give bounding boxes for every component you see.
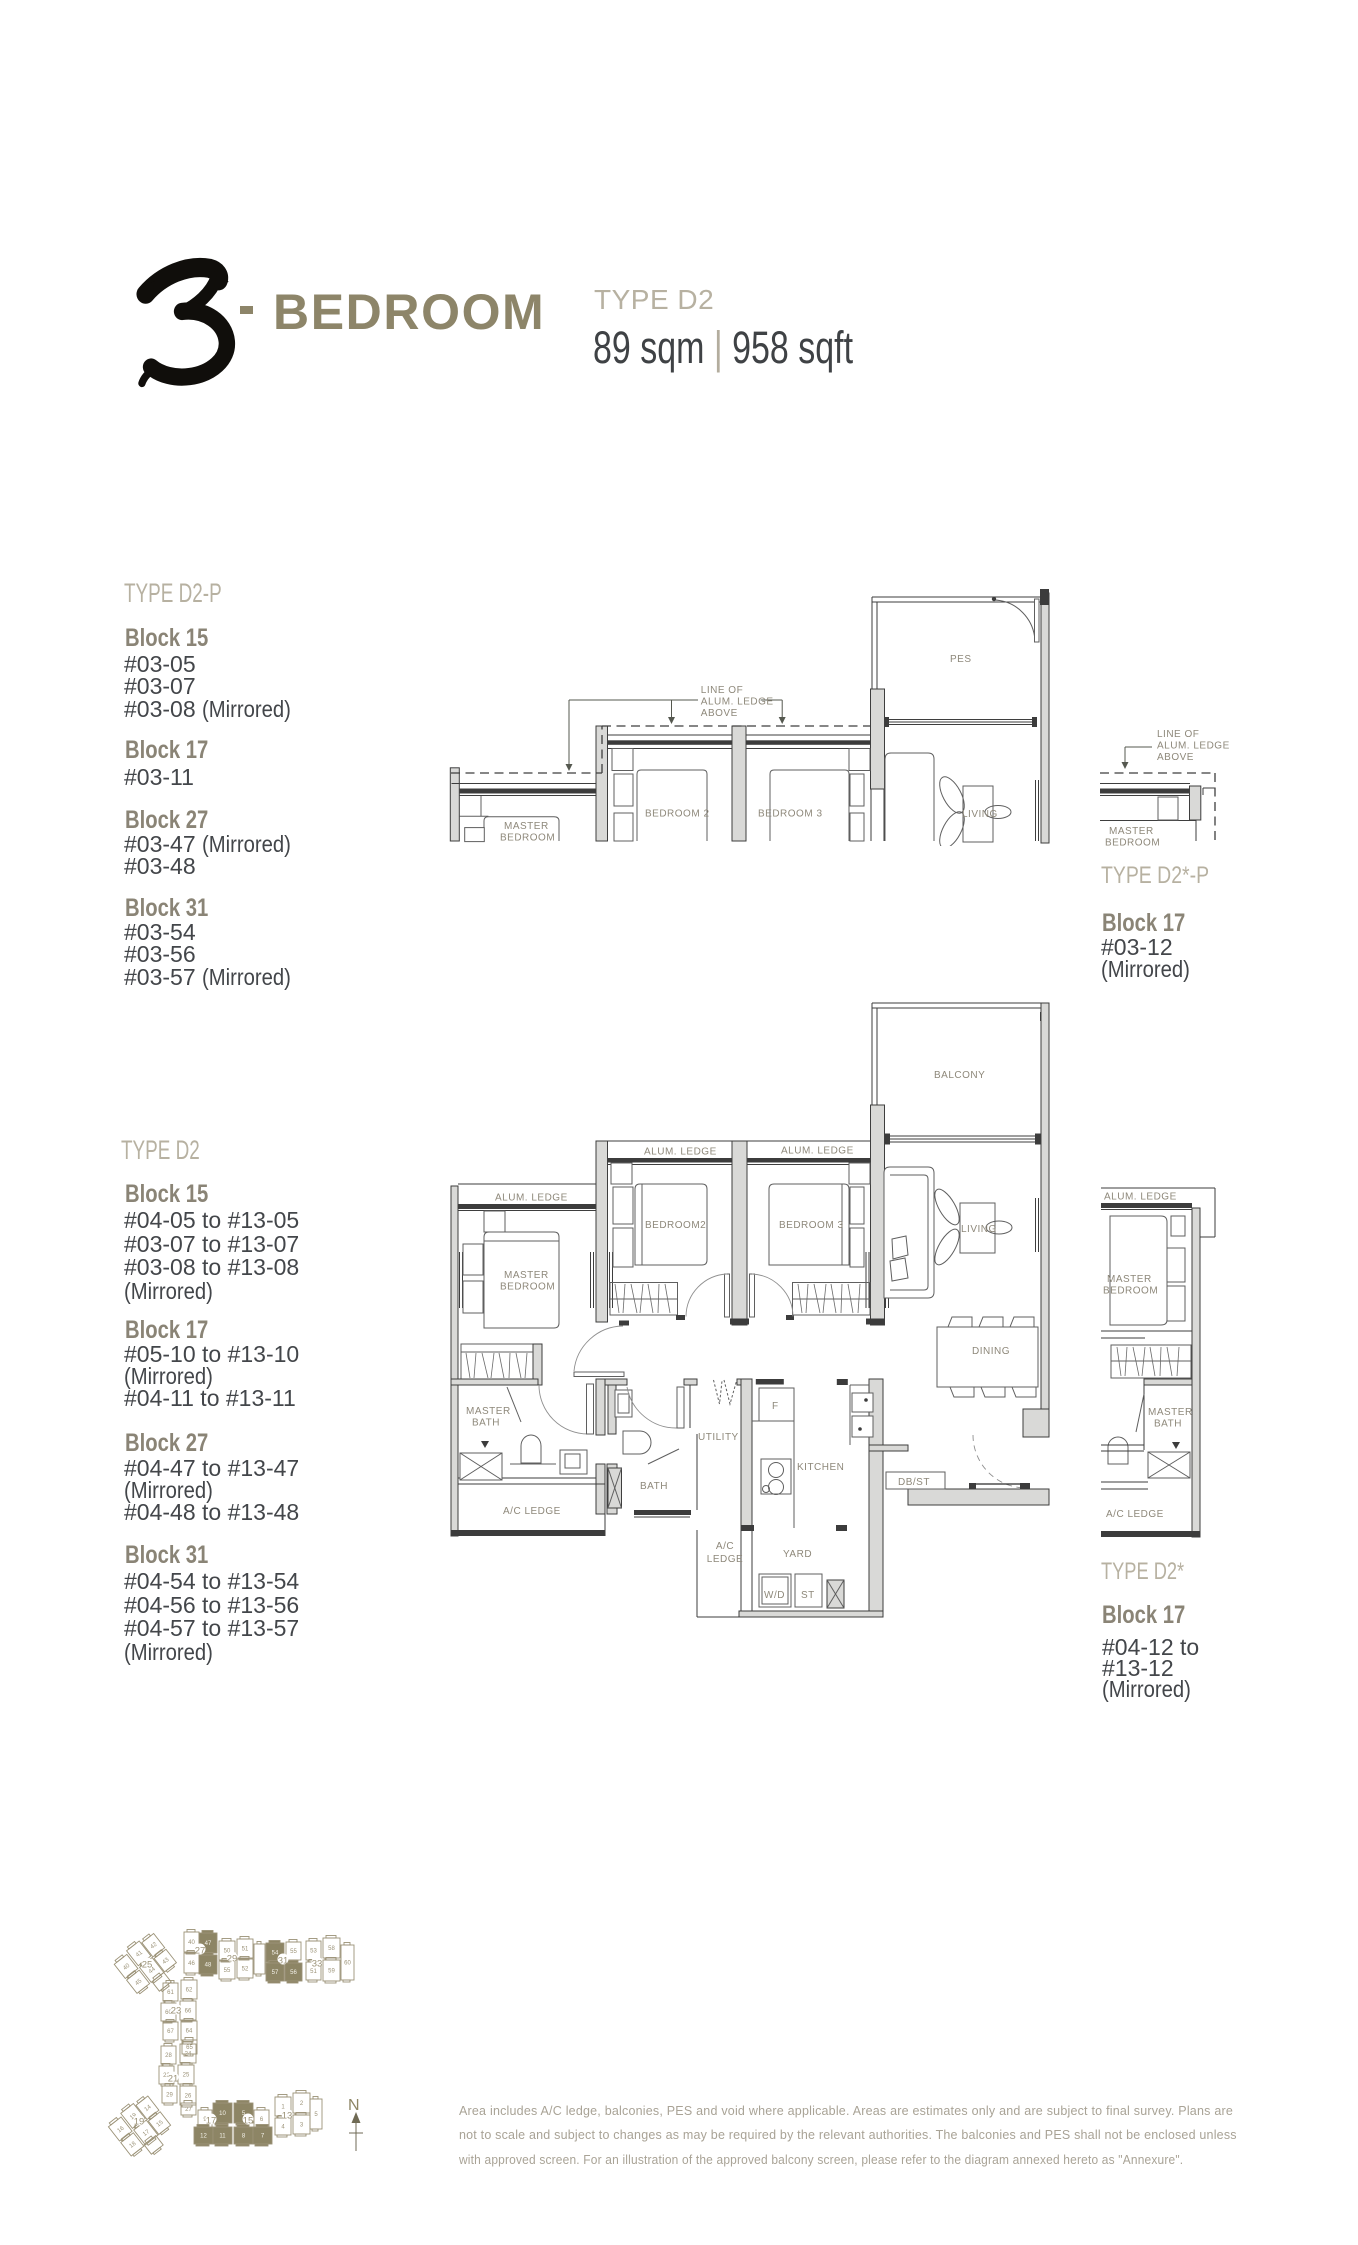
- svg-text:15: 15: [243, 2116, 254, 2127]
- svg-text:48: 48: [205, 1963, 212, 1969]
- svg-text:ALUM. LEDGE: ALUM. LEDGE: [781, 1146, 854, 1157]
- svg-text:ST: ST: [801, 1590, 815, 1601]
- svg-text:LIVING: LIVING: [962, 809, 998, 820]
- svg-text:13: 13: [282, 2111, 293, 2122]
- svg-text:62: 62: [186, 1988, 193, 1994]
- svg-text:W/D: W/D: [764, 1590, 785, 1601]
- svg-text:UTILITY: UTILITY: [698, 1432, 739, 1443]
- svg-text:F: F: [772, 1401, 779, 1412]
- svg-text:MASTER: MASTER: [1109, 826, 1154, 837]
- svg-text:BEDROOM 2: BEDROOM 2: [645, 809, 710, 820]
- svg-text:BEDROOM: BEDROOM: [1103, 1286, 1158, 1297]
- svg-text:DINING: DINING: [972, 1346, 1010, 1357]
- svg-text:ALUM. LEDGE: ALUM. LEDGE: [1104, 1192, 1177, 1203]
- svg-text:26: 26: [185, 2094, 192, 2100]
- svg-text:12: 12: [200, 2134, 207, 2140]
- svg-text:BATH: BATH: [472, 1418, 500, 1429]
- svg-text:MASTER: MASTER: [1107, 1274, 1152, 1285]
- svg-text:29: 29: [227, 1954, 238, 1965]
- svg-text:25: 25: [142, 1960, 153, 1971]
- svg-text:ALUM. LEDGE: ALUM. LEDGE: [644, 1147, 717, 1158]
- svg-text:29: 29: [166, 2093, 173, 2099]
- svg-text:58: 58: [328, 1946, 335, 1952]
- svg-text:10: 10: [219, 2111, 226, 2117]
- svg-text:MASTER: MASTER: [504, 821, 549, 832]
- svg-text:27: 27: [195, 1946, 206, 1957]
- svg-text:17: 17: [206, 2116, 217, 2127]
- svg-text:24: 24: [185, 2052, 192, 2058]
- svg-text:ALUM. LEDGE: ALUM. LEDGE: [701, 697, 774, 708]
- svg-text:3: 3: [300, 2123, 304, 2129]
- svg-text:27: 27: [185, 2107, 192, 2113]
- svg-text:MASTER: MASTER: [504, 1270, 549, 1281]
- svg-text:52: 52: [242, 1967, 249, 1973]
- svg-text:25: 25: [183, 2073, 190, 2079]
- svg-text:BATH: BATH: [1154, 1419, 1182, 1430]
- svg-text:BEDROOM: BEDROOM: [1105, 838, 1160, 849]
- svg-text:61: 61: [167, 1990, 174, 1996]
- svg-text:43: 43: [162, 1957, 171, 1966]
- svg-text:60: 60: [344, 1961, 351, 1967]
- svg-text:19: 19: [134, 2117, 145, 2128]
- svg-text:51: 51: [310, 1969, 317, 1975]
- svg-text:2: 2: [300, 2101, 304, 2107]
- svg-text:N: N: [348, 2097, 361, 2114]
- svg-text:47: 47: [205, 1941, 212, 1947]
- svg-text:ALUM. LEDGE: ALUM. LEDGE: [1157, 741, 1230, 752]
- svg-text:64: 64: [186, 2029, 193, 2035]
- svg-text:41: 41: [135, 1950, 144, 1959]
- svg-text:MASTER: MASTER: [1148, 1407, 1193, 1418]
- svg-text:A/C LEDGE: A/C LEDGE: [1106, 1509, 1164, 1520]
- svg-text:BALCONY: BALCONY: [934, 1070, 985, 1081]
- svg-text:ABOVE: ABOVE: [701, 708, 738, 719]
- svg-text:DB/ST: DB/ST: [898, 1477, 930, 1488]
- svg-text:BEDROOM: BEDROOM: [500, 1282, 555, 1293]
- svg-text:BEDROOM 3: BEDROOM 3: [758, 809, 823, 820]
- svg-text:33: 33: [312, 1959, 323, 1970]
- svg-text:28: 28: [165, 2053, 172, 2059]
- svg-text:21: 21: [168, 2074, 179, 2085]
- svg-text:A/C LEDGE: A/C LEDGE: [503, 1506, 561, 1517]
- svg-text:66: 66: [185, 2009, 192, 2015]
- svg-text:MASTER: MASTER: [466, 1406, 511, 1417]
- svg-text:LINE OF: LINE OF: [701, 685, 743, 696]
- svg-text:11: 11: [219, 2134, 226, 2140]
- svg-text:ALUM. LEDGE: ALUM. LEDGE: [495, 1193, 568, 1204]
- svg-text:42: 42: [150, 1941, 159, 1950]
- svg-text:BEDROOM2: BEDROOM2: [645, 1220, 706, 1231]
- svg-text:16: 16: [117, 2125, 126, 2134]
- svg-text:56: 56: [290, 1970, 297, 1976]
- svg-text:A/CLEDGE: A/CLEDGE: [707, 1541, 743, 1565]
- svg-text:LIVING: LIVING: [961, 1224, 997, 1235]
- svg-text:YARD: YARD: [783, 1549, 812, 1560]
- svg-text:15: 15: [156, 2119, 165, 2128]
- svg-text:ABOVE: ABOVE: [1157, 752, 1194, 763]
- svg-text:59: 59: [328, 1969, 335, 1975]
- svg-text:5: 5: [314, 2112, 318, 2118]
- svg-text:65: 65: [186, 2045, 193, 2051]
- svg-text:KITCHEN: KITCHEN: [797, 1462, 844, 1473]
- svg-text:PES: PES: [950, 654, 972, 665]
- svg-text:14: 14: [144, 2104, 153, 2113]
- svg-text:6: 6: [260, 2117, 264, 2123]
- svg-text:23: 23: [171, 2006, 182, 2017]
- svg-text:BEDROOM: BEDROOM: [500, 833, 555, 844]
- svg-text:BEDROOM 3: BEDROOM 3: [779, 1220, 844, 1231]
- svg-text:31: 31: [278, 1956, 289, 1967]
- svg-text:53: 53: [310, 1949, 317, 1955]
- svg-text:BATH: BATH: [640, 1481, 668, 1492]
- svg-text:55: 55: [290, 1949, 297, 1955]
- svg-text:45: 45: [134, 1978, 143, 1987]
- svg-text:40: 40: [122, 1963, 131, 1972]
- svg-text:55: 55: [224, 1968, 231, 1974]
- svg-text:67: 67: [167, 2029, 174, 2035]
- svg-text:LINE OF: LINE OF: [1157, 729, 1199, 740]
- svg-text:57: 57: [272, 1970, 279, 1976]
- svg-text:4: 4: [281, 2125, 285, 2131]
- svg-text:51: 51: [242, 1947, 249, 1953]
- svg-text:46: 46: [188, 1961, 195, 1967]
- svg-text:18: 18: [129, 2140, 138, 2149]
